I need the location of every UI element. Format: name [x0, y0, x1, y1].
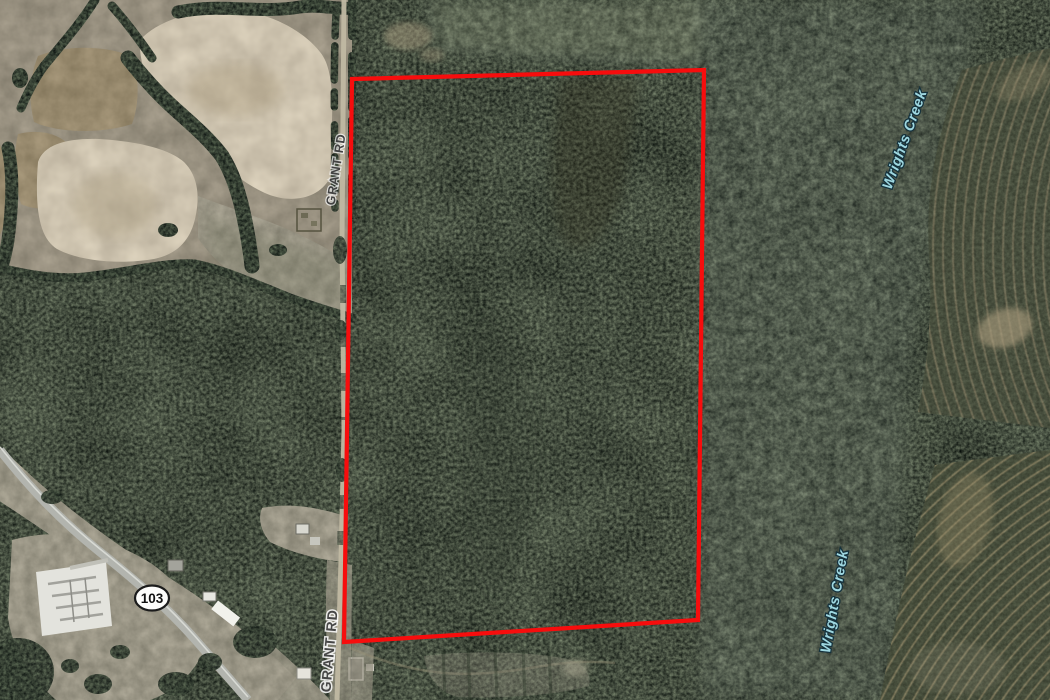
svg-text:103: 103 — [141, 591, 164, 606]
